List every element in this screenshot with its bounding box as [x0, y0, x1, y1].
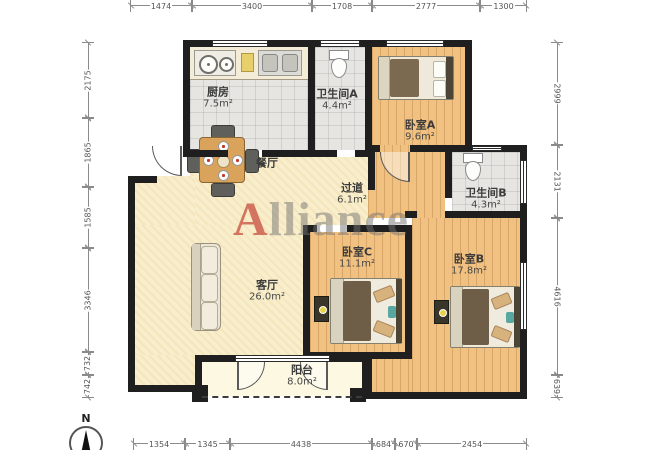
room-area: 26.0m² — [249, 292, 285, 304]
dimension-top: 1474 3400 1708 2777 1300 — [130, 0, 527, 12]
room-name: 阳台 — [287, 363, 317, 376]
small-appliance-icon — [241, 53, 254, 72]
watermark-rest: lliance — [269, 193, 409, 246]
nightstand-icon-bedroom-b — [434, 300, 449, 324]
dimension-segment: 1300 — [480, 0, 527, 12]
dimension-segment: 2131 — [551, 145, 563, 218]
wall-segment — [365, 40, 372, 150]
room-label-balcony: 阳台 8.0m² — [287, 363, 317, 388]
room-area: 9.6m² — [405, 132, 436, 144]
room-area: 11.1m² — [339, 259, 375, 271]
compass-needle-icon — [81, 430, 91, 450]
toilet-icon-bathroom-b — [463, 153, 483, 181]
window-kitchen — [212, 40, 268, 47]
floor-plan-canvas: 厨房 7.5m² 卫生间A 4.4m² 卧室A 9.6m² 餐厅 过道 6.1m… — [0, 0, 650, 450]
dimension-segment: 1345 — [185, 438, 230, 450]
dimension-segment: 742 — [82, 375, 94, 398]
dimension-segment: 1354 — [133, 438, 185, 450]
dimension-segment: 3400 — [192, 0, 312, 12]
room-label-living: 客厅 26.0m² — [249, 278, 285, 303]
window-balcony — [235, 355, 330, 362]
wall-segment — [410, 145, 472, 152]
stove-icon — [194, 50, 236, 76]
bed-icon-bedroom-c — [330, 278, 402, 344]
window-bathroom-b-right — [520, 160, 527, 204]
room-area: 8.0m² — [287, 377, 317, 389]
window-bathroom-a — [320, 40, 360, 47]
kitchen-counter-icon — [190, 47, 308, 80]
floor-entry — [135, 176, 195, 225]
dimension-bottom: 1354 1345 4438 684 670 2454 — [133, 438, 527, 450]
sink-basin — [262, 54, 278, 72]
dimension-right: 2999 2131 4616 639 — [551, 42, 563, 398]
wall-segment — [445, 211, 527, 218]
wall-segment — [445, 152, 452, 198]
floor-living-south — [135, 355, 195, 385]
room-name: 卧室B — [451, 252, 487, 265]
room-name: 餐厅 — [256, 156, 278, 169]
compass: N — [64, 412, 108, 450]
watermark: Alliance — [233, 196, 409, 244]
room-name: 卫生间B — [465, 186, 506, 199]
room-area: 4.3m² — [465, 200, 506, 212]
dimension-segment: 670 — [395, 438, 417, 450]
room-label-bedroom-a: 卧室A 9.6m² — [405, 118, 436, 143]
wall-segment — [183, 40, 190, 157]
wall-segment — [308, 40, 315, 150]
dimension-segment: 1865 — [82, 118, 94, 187]
room-name: 卫生间A — [316, 87, 358, 100]
wall-segment — [183, 150, 228, 157]
room-label-bedroom-b: 卧室B 17.8m² — [451, 252, 487, 277]
dimension-segment: 4438 — [230, 438, 372, 450]
bed-icon-bedroom-b — [450, 286, 520, 348]
watermark-accent-letter: A — [233, 193, 269, 246]
dimension-segment: 2175 — [82, 42, 94, 118]
dimension-segment: 1708 — [312, 0, 372, 12]
dimension-segment: 1585 — [82, 187, 94, 248]
sink-icon — [258, 50, 302, 76]
dining-table-icon — [199, 137, 245, 183]
wall-segment — [368, 150, 375, 190]
dimension-segment: 3346 — [82, 248, 94, 352]
dimension-segment: 1474 — [130, 0, 192, 12]
dimension-segment: 639 — [551, 375, 563, 398]
north-label: N — [64, 412, 108, 425]
room-label-dining: 餐厅 — [256, 156, 278, 169]
room-label-bathroom-b: 卫生间B 4.3m² — [465, 186, 506, 211]
wall-segment — [465, 40, 472, 152]
wall-segment — [128, 176, 135, 392]
nightstand-icon-bedroom-c — [314, 296, 329, 322]
room-name: 卧室C — [339, 245, 375, 258]
room-name: 厨房 — [203, 85, 233, 98]
dimension-segment: 2454 — [417, 438, 527, 450]
bed-icon-bedroom-a — [378, 56, 454, 100]
dimension-segment: 732 — [82, 352, 94, 375]
chair-icon — [211, 183, 235, 197]
burner-icon — [219, 57, 234, 72]
entry-door-leaf — [180, 146, 182, 176]
room-area: 17.8m² — [451, 266, 487, 278]
dimension-segment: 684 — [372, 438, 395, 450]
dimension-segment: 2999 — [551, 42, 563, 145]
window-bedroom-b — [520, 262, 527, 330]
balcony-railing — [202, 380, 362, 398]
room-name: 卧室A — [405, 118, 436, 131]
room-label-kitchen: 厨房 7.5m² — [203, 85, 233, 110]
compass-dial — [69, 426, 103, 450]
wall-segment — [362, 392, 527, 399]
dimension-segment: 4616 — [551, 218, 563, 375]
room-area: 4.4m² — [316, 101, 358, 113]
sink-basin — [282, 54, 298, 72]
room-area: 7.5m² — [203, 99, 233, 111]
dimension-left: 2175 1865 1585 3346 732 742 — [82, 42, 94, 398]
window-bathroom-b-top — [472, 146, 502, 151]
room-label-bathroom-a: 卫生间A 4.4m² — [316, 87, 358, 112]
sofa-icon — [191, 243, 221, 331]
window-bedroom-a — [386, 40, 444, 47]
bedroom-a-door-leaf — [408, 152, 410, 182]
entry-door-arc — [152, 146, 182, 176]
room-name: 客厅 — [249, 278, 285, 291]
room-label-bedroom-c: 卧室C 11.1m² — [339, 245, 375, 270]
dimension-segment: 2777 — [372, 0, 480, 12]
burner-icon — [199, 55, 218, 74]
toilet-icon-bathroom-a — [329, 50, 349, 78]
